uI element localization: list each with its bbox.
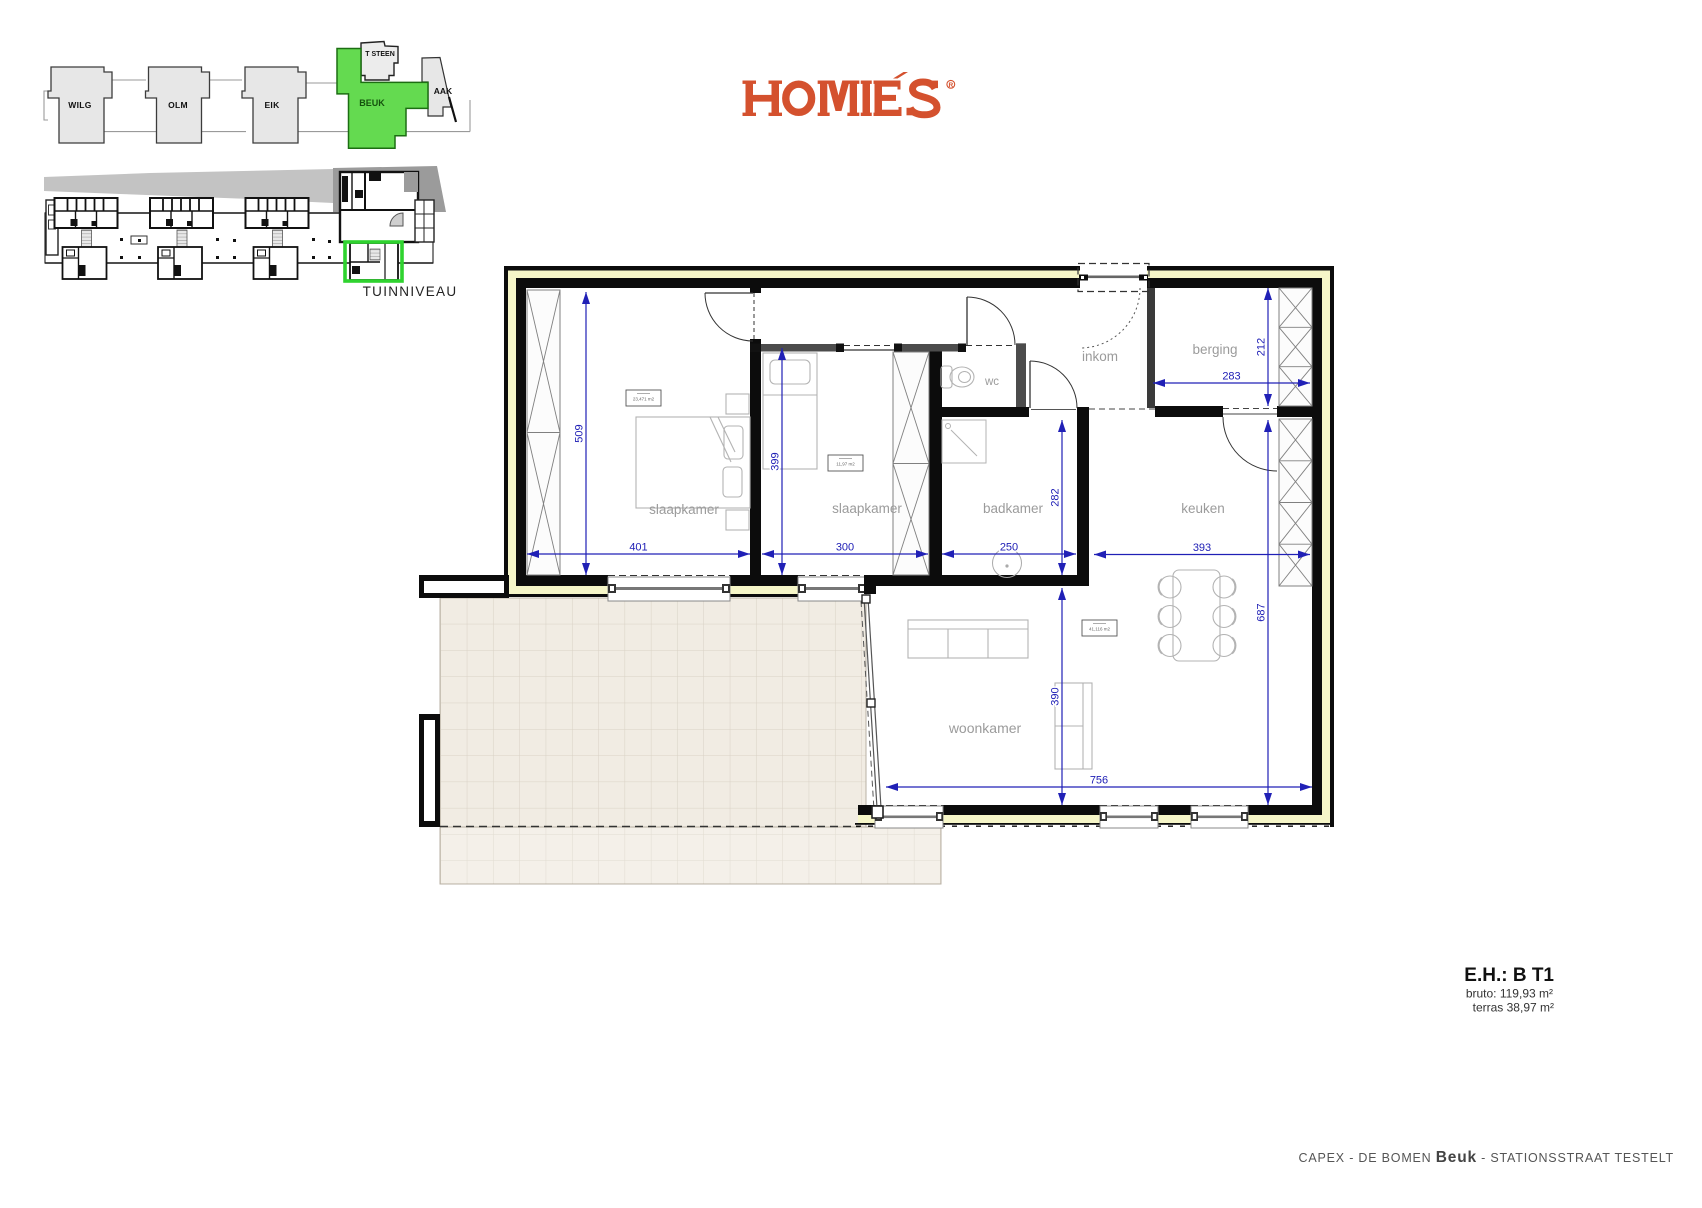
- svg-text:E.H.: B T1: E.H.: B T1: [1464, 965, 1554, 986]
- svg-text:687: 687: [1256, 603, 1268, 621]
- svg-text:212: 212: [1256, 338, 1268, 356]
- svg-text:keuken: keuken: [1181, 501, 1225, 516]
- svg-text:wc: wc: [984, 376, 999, 388]
- svg-text:bruto: 119,93 m²: bruto: 119,93 m²: [1466, 987, 1553, 1001]
- svg-text:BEUK: BEUK: [359, 98, 385, 108]
- svg-text:EIK: EIK: [264, 100, 280, 110]
- svg-text:11,97 m2: 11,97 m2: [836, 462, 855, 467]
- svg-text:390: 390: [1050, 687, 1062, 705]
- svg-text:terras 38,97 m²: terras 38,97 m²: [1473, 1001, 1554, 1015]
- svg-text:berging: berging: [1192, 342, 1237, 357]
- svg-text:slaapkamer: slaapkamer: [832, 501, 902, 516]
- svg-text:250: 250: [1000, 542, 1018, 554]
- svg-text:woonkamer: woonkamer: [948, 720, 1022, 736]
- svg-text:300: 300: [836, 542, 854, 554]
- svg-text:CAPEX - DE BOMEN Beuk - STATIO: CAPEX - DE BOMEN Beuk - STATIONSSTRAAT T…: [1299, 1149, 1674, 1166]
- svg-text:slaapkamer: slaapkamer: [649, 502, 719, 517]
- svg-text:509: 509: [574, 424, 586, 442]
- svg-text:41,116 m2: 41,116 m2: [1089, 627, 1110, 632]
- svg-text:inkom: inkom: [1082, 349, 1118, 364]
- svg-text:badkamer: badkamer: [983, 501, 1044, 516]
- svg-text:282: 282: [1050, 488, 1062, 506]
- svg-text:283: 283: [1222, 371, 1240, 383]
- svg-text:WILG: WILG: [68, 100, 91, 110]
- svg-text:R: R: [948, 82, 953, 89]
- svg-text:OLM: OLM: [168, 100, 188, 110]
- svg-text:23,471 m2: 23,471 m2: [633, 397, 655, 402]
- svg-text:AAK: AAK: [434, 86, 453, 96]
- svg-text:393: 393: [1193, 542, 1211, 554]
- svg-text:756: 756: [1090, 775, 1108, 787]
- svg-text:TUINNIVEAU: TUINNIVEAU: [363, 284, 458, 299]
- svg-text:T STEEN: T STEEN: [365, 51, 395, 58]
- svg-text:401: 401: [629, 542, 647, 554]
- svg-text:399: 399: [770, 452, 782, 470]
